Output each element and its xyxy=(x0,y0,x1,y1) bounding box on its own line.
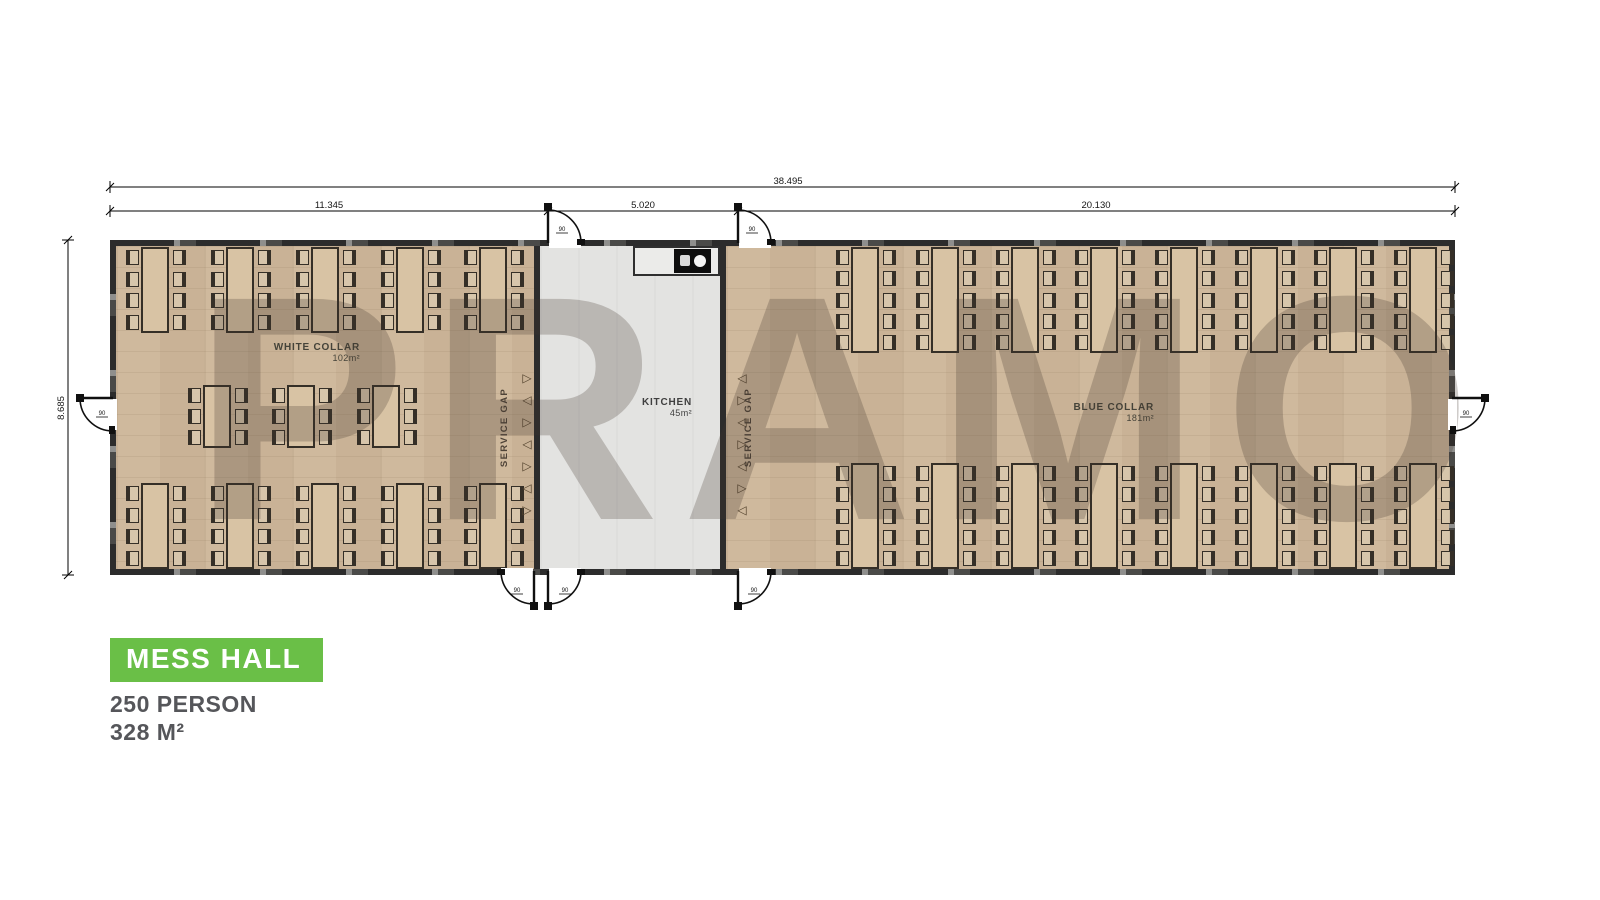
chair xyxy=(511,551,524,566)
door-width-label: 90 xyxy=(749,227,756,233)
chair xyxy=(188,409,201,424)
chair xyxy=(428,551,441,566)
chair xyxy=(173,551,186,566)
chair xyxy=(126,551,139,566)
chair xyxy=(1202,551,1215,566)
chair xyxy=(258,508,271,523)
chair xyxy=(404,388,417,403)
chair xyxy=(272,388,285,403)
chair xyxy=(381,315,394,330)
chair xyxy=(1043,314,1056,329)
dining-table xyxy=(996,247,1056,353)
dining-table xyxy=(381,483,441,569)
chair xyxy=(836,314,849,329)
chair xyxy=(1202,466,1215,481)
chair xyxy=(1361,314,1374,329)
chair xyxy=(428,508,441,523)
floorplan-canvas: ▷◁▷◁▷◁▷◁▷◁▷◁▷◁ SERVICE GAP SERVICE GAP W… xyxy=(0,0,1600,900)
chair xyxy=(1314,487,1327,502)
chair xyxy=(1155,335,1168,350)
chair xyxy=(296,529,309,544)
chair xyxy=(1441,466,1454,481)
chair xyxy=(1394,250,1407,265)
chair xyxy=(1122,466,1135,481)
chair xyxy=(272,409,285,424)
chair xyxy=(126,486,139,501)
chair xyxy=(916,293,929,308)
chair xyxy=(1441,314,1454,329)
table-top xyxy=(479,247,507,333)
chair xyxy=(1122,314,1135,329)
table-top xyxy=(203,385,231,448)
chair xyxy=(1155,509,1168,524)
chair xyxy=(258,529,271,544)
chair xyxy=(916,314,929,329)
chair xyxy=(1202,314,1215,329)
chair xyxy=(381,508,394,523)
dining-table xyxy=(1235,463,1295,569)
chair xyxy=(836,335,849,350)
wall-left xyxy=(110,240,116,575)
chair xyxy=(963,487,976,502)
table-top xyxy=(396,247,424,333)
chair xyxy=(173,272,186,287)
chair xyxy=(173,486,186,501)
plan-area: 328 M² xyxy=(110,719,323,746)
chair xyxy=(1394,509,1407,524)
chair xyxy=(381,529,394,544)
chair xyxy=(1282,293,1295,308)
chair xyxy=(1075,551,1088,566)
chair xyxy=(963,250,976,265)
chair xyxy=(126,508,139,523)
chair xyxy=(963,530,976,545)
chair xyxy=(1361,487,1374,502)
chair xyxy=(1441,335,1454,350)
chair xyxy=(963,466,976,481)
table-top xyxy=(479,483,507,569)
chair xyxy=(211,315,224,330)
chair xyxy=(1235,551,1248,566)
chair xyxy=(1394,487,1407,502)
chair xyxy=(1075,530,1088,545)
chair xyxy=(1361,250,1374,265)
table-top xyxy=(1250,247,1278,353)
chair xyxy=(996,314,1009,329)
dining-table xyxy=(1155,247,1215,353)
chair xyxy=(1282,314,1295,329)
chair xyxy=(1282,551,1295,566)
chair xyxy=(1394,335,1407,350)
table-top xyxy=(396,483,424,569)
chair xyxy=(235,430,248,445)
chair xyxy=(1202,335,1215,350)
chair xyxy=(1314,335,1327,350)
kitchen-wall-left xyxy=(534,246,540,569)
chair xyxy=(296,250,309,265)
chair xyxy=(916,530,929,545)
chair xyxy=(916,466,929,481)
chair xyxy=(883,314,896,329)
chair xyxy=(511,293,524,308)
chair xyxy=(836,509,849,524)
dining-table xyxy=(1314,247,1374,353)
room-area: 102m² xyxy=(248,353,360,363)
chair xyxy=(1122,335,1135,350)
triangle-left-icon: ◁ xyxy=(735,372,749,384)
chair xyxy=(211,529,224,544)
table-top xyxy=(226,247,254,333)
chair xyxy=(511,250,524,265)
kitchen-wall-right xyxy=(720,246,726,569)
chair xyxy=(428,529,441,544)
dining-table xyxy=(296,483,356,569)
chair xyxy=(296,508,309,523)
chair xyxy=(404,430,417,445)
chair xyxy=(211,551,224,566)
chair xyxy=(1155,466,1168,481)
chair xyxy=(1122,551,1135,566)
chair xyxy=(1043,487,1056,502)
chair xyxy=(464,250,477,265)
chair xyxy=(1235,530,1248,545)
chair xyxy=(1314,271,1327,286)
plan-capacity: 250 PERSON xyxy=(110,691,323,718)
chair xyxy=(211,486,224,501)
chair xyxy=(188,388,201,403)
chair xyxy=(464,508,477,523)
chair xyxy=(428,315,441,330)
chair xyxy=(1361,293,1374,308)
chair xyxy=(963,293,976,308)
chair xyxy=(173,508,186,523)
chair xyxy=(319,388,332,403)
door-width-label: 90 xyxy=(1463,411,1470,417)
chair xyxy=(1441,293,1454,308)
chair xyxy=(464,486,477,501)
chair xyxy=(1043,509,1056,524)
chair xyxy=(511,529,524,544)
chair xyxy=(836,530,849,545)
chair xyxy=(343,272,356,287)
chair xyxy=(343,486,356,501)
chair xyxy=(511,272,524,287)
door-width-label: 90 xyxy=(559,227,566,233)
chair xyxy=(1314,466,1327,481)
dim-white-collar-width: 11.345 xyxy=(315,200,343,211)
chair xyxy=(1155,314,1168,329)
chair xyxy=(1235,487,1248,502)
chair xyxy=(173,293,186,308)
chair xyxy=(173,529,186,544)
chair xyxy=(1122,530,1135,545)
chair xyxy=(883,530,896,545)
chair xyxy=(1282,466,1295,481)
chair xyxy=(836,293,849,308)
chair xyxy=(296,315,309,330)
title-block: MESS HALL 250 PERSON 328 M² xyxy=(110,638,323,746)
room-area: 45m² xyxy=(612,408,692,418)
chair xyxy=(996,487,1009,502)
table-top xyxy=(1170,463,1198,569)
chair xyxy=(1155,530,1168,545)
chair xyxy=(272,430,285,445)
chair xyxy=(963,509,976,524)
table-top xyxy=(931,463,959,569)
chair xyxy=(296,486,309,501)
chair xyxy=(357,388,370,403)
chair xyxy=(1361,466,1374,481)
chair xyxy=(1122,271,1135,286)
chair xyxy=(235,409,248,424)
chair xyxy=(319,430,332,445)
dim-blue-collar-width: 20.130 xyxy=(1081,200,1110,211)
chair xyxy=(1314,551,1327,566)
chair xyxy=(883,271,896,286)
room-area: 181m² xyxy=(1042,413,1154,423)
chair xyxy=(996,530,1009,545)
chair xyxy=(357,409,370,424)
dining-table xyxy=(916,463,976,569)
chair xyxy=(1314,314,1327,329)
door-width-label: 90 xyxy=(514,588,521,594)
chair xyxy=(1043,293,1056,308)
chair xyxy=(963,314,976,329)
room-label-white-collar: WHITE COLLAR 102m² xyxy=(248,342,360,363)
chair xyxy=(343,508,356,523)
chair xyxy=(126,315,139,330)
chair xyxy=(1075,271,1088,286)
table-top xyxy=(851,247,879,353)
wall-bottom xyxy=(110,569,1455,575)
chair xyxy=(1043,271,1056,286)
chair xyxy=(1361,271,1374,286)
chair xyxy=(1122,250,1135,265)
door-width-label: 90 xyxy=(562,588,569,594)
chair xyxy=(1202,293,1215,308)
chair xyxy=(1314,250,1327,265)
chair xyxy=(1441,250,1454,265)
chair xyxy=(1394,314,1407,329)
chair xyxy=(211,508,224,523)
chair xyxy=(1155,271,1168,286)
chair xyxy=(211,272,224,287)
table-top xyxy=(372,385,400,448)
chair xyxy=(996,335,1009,350)
dim-building-height: 8.685 xyxy=(56,396,67,420)
table-top xyxy=(287,385,315,448)
chair xyxy=(883,250,896,265)
chair xyxy=(836,487,849,502)
table-top xyxy=(1250,463,1278,569)
chair xyxy=(1235,250,1248,265)
dining-table xyxy=(296,247,356,333)
chair xyxy=(1394,293,1407,308)
table-top xyxy=(931,247,959,353)
chair xyxy=(343,551,356,566)
chair xyxy=(1314,530,1327,545)
table-top xyxy=(311,247,339,333)
chair xyxy=(883,551,896,566)
chair xyxy=(916,487,929,502)
chair xyxy=(1155,551,1168,566)
chair xyxy=(1202,271,1215,286)
chair xyxy=(1122,509,1135,524)
chair xyxy=(1441,271,1454,286)
chair xyxy=(1202,509,1215,524)
triangle-left-icon: ◁ xyxy=(520,482,534,494)
chair xyxy=(1075,335,1088,350)
dining-table xyxy=(211,247,271,333)
triangle-right-icon: ▷ xyxy=(520,460,534,472)
chair xyxy=(381,486,394,501)
chair xyxy=(1441,530,1454,545)
chair xyxy=(1361,551,1374,566)
chair xyxy=(1282,335,1295,350)
chair xyxy=(996,551,1009,566)
chair xyxy=(1282,487,1295,502)
room-name: WHITE COLLAR xyxy=(248,342,360,353)
chair xyxy=(996,271,1009,286)
triangle-left-icon: ◁ xyxy=(520,438,534,450)
chair xyxy=(464,529,477,544)
chair xyxy=(916,271,929,286)
chair xyxy=(1441,487,1454,502)
room-name: KITCHEN xyxy=(612,397,692,408)
chair xyxy=(1235,335,1248,350)
chair xyxy=(319,409,332,424)
dining-table xyxy=(1155,463,1215,569)
triangle-right-icon: ▷ xyxy=(520,504,534,516)
dining-table xyxy=(836,247,896,353)
dining-table xyxy=(1394,463,1454,569)
dining-table xyxy=(126,483,186,569)
dim-kitchen-width: 5.020 xyxy=(631,200,655,211)
dining-table xyxy=(126,247,186,333)
chair xyxy=(381,551,394,566)
chair xyxy=(1155,293,1168,308)
door-width-label: 90 xyxy=(751,588,758,594)
chair xyxy=(258,315,271,330)
dining-table xyxy=(1314,463,1374,569)
triangle-left-icon: ◁ xyxy=(735,504,749,516)
chair xyxy=(963,271,976,286)
chair xyxy=(188,430,201,445)
table-top xyxy=(851,463,879,569)
chair xyxy=(235,388,248,403)
chair xyxy=(464,551,477,566)
chair xyxy=(381,272,394,287)
chair xyxy=(996,293,1009,308)
table-top xyxy=(141,247,169,333)
chair xyxy=(126,250,139,265)
chair xyxy=(1235,293,1248,308)
dining-table xyxy=(272,385,332,448)
service-gap-label-left: SERVICE GAP xyxy=(499,388,510,467)
service-gap-label-right: SERVICE GAP xyxy=(743,388,754,467)
triangle-right-icon: ▷ xyxy=(520,372,534,384)
wall-top xyxy=(110,240,1455,246)
chair xyxy=(1441,509,1454,524)
dining-table xyxy=(211,483,271,569)
stove-burner xyxy=(694,255,706,267)
table-top xyxy=(1011,463,1039,569)
chair xyxy=(1394,551,1407,566)
chair xyxy=(1075,466,1088,481)
chair xyxy=(883,335,896,350)
chair xyxy=(1155,487,1168,502)
room-name: BLUE COLLAR xyxy=(1042,402,1154,413)
chair xyxy=(1075,487,1088,502)
triangle-right-icon: ▷ xyxy=(735,482,749,494)
dining-table xyxy=(836,463,896,569)
chair xyxy=(916,551,929,566)
chair xyxy=(464,315,477,330)
chair xyxy=(258,250,271,265)
table-top xyxy=(1090,247,1118,353)
chair xyxy=(1075,293,1088,308)
chair xyxy=(211,293,224,308)
dining-table xyxy=(916,247,976,353)
chair xyxy=(1314,509,1327,524)
table-top xyxy=(1409,463,1437,569)
triangle-right-icon: ▷ xyxy=(520,416,534,428)
chair xyxy=(1122,487,1135,502)
chair xyxy=(343,315,356,330)
chair xyxy=(126,293,139,308)
chair xyxy=(1361,509,1374,524)
chair xyxy=(836,250,849,265)
chair xyxy=(1282,530,1295,545)
dining-table xyxy=(996,463,1056,569)
table-top xyxy=(1090,463,1118,569)
chair xyxy=(883,466,896,481)
chair xyxy=(428,486,441,501)
chair xyxy=(343,529,356,544)
chair xyxy=(1441,551,1454,566)
chair xyxy=(1235,466,1248,481)
chair xyxy=(916,250,929,265)
chair xyxy=(1235,509,1248,524)
chair xyxy=(1361,530,1374,545)
chair xyxy=(1235,271,1248,286)
chair xyxy=(1394,466,1407,481)
chair xyxy=(883,487,896,502)
chair xyxy=(381,293,394,308)
chair xyxy=(296,293,309,308)
chair xyxy=(511,315,524,330)
chair xyxy=(1202,530,1215,545)
chair xyxy=(126,529,139,544)
stove-pad xyxy=(680,255,690,266)
chair xyxy=(1282,271,1295,286)
chair xyxy=(916,335,929,350)
plan-title-badge: MESS HALL xyxy=(110,638,323,682)
dim-total-width: 38.495 xyxy=(773,176,802,187)
chair xyxy=(1043,335,1056,350)
room-label-blue-collar: BLUE COLLAR 181m² xyxy=(1042,402,1154,423)
room-label-kitchen: KITCHEN 45m² xyxy=(612,397,692,418)
dining-table xyxy=(1394,247,1454,353)
chair xyxy=(428,272,441,287)
chair xyxy=(916,509,929,524)
dining-table xyxy=(1075,463,1135,569)
table-top xyxy=(141,483,169,569)
chair xyxy=(1202,250,1215,265)
chair xyxy=(1122,293,1135,308)
dining-table xyxy=(1235,247,1295,353)
chair xyxy=(464,272,477,287)
